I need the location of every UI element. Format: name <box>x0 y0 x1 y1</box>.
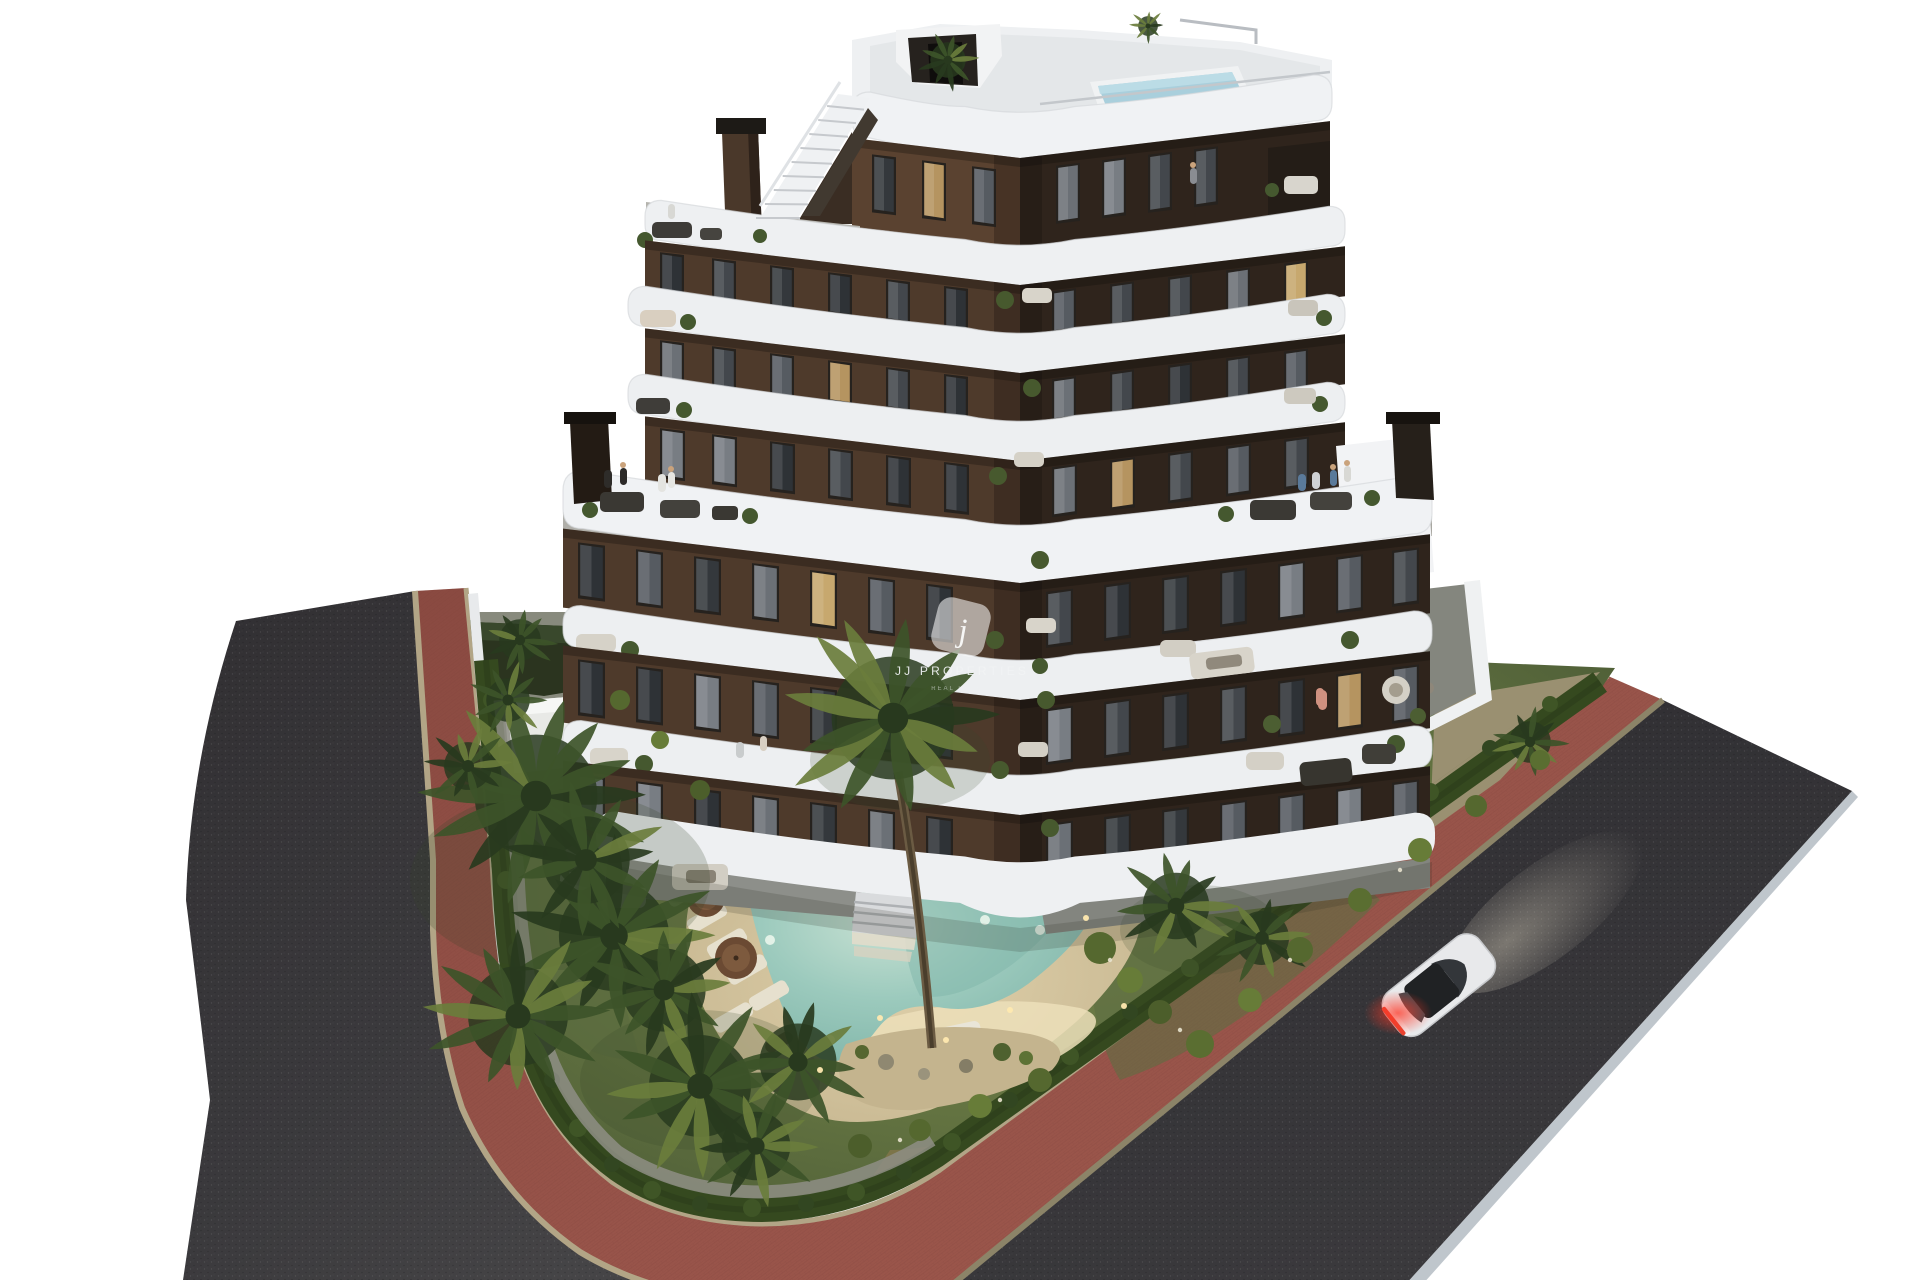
svg-text:REAL ESTATE: REAL ESTATE <box>931 686 993 692</box>
svg-text:JJ PROPERTIES: JJ PROPERTIES <box>895 664 1029 678</box>
